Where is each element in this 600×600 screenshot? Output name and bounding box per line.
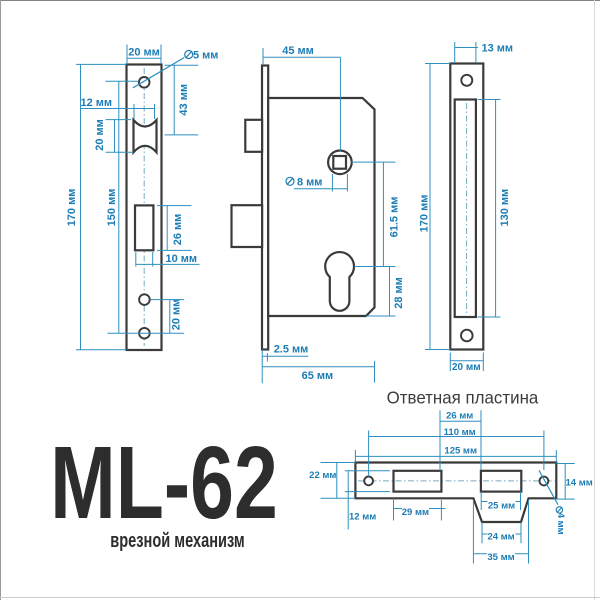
svg-text:ML-62: ML-62 <box>50 426 278 541</box>
svg-text:врезной механизм: врезной механизм <box>110 529 244 552</box>
svg-text:24 мм: 24 мм <box>487 532 514 543</box>
svg-text:26 мм: 26 мм <box>172 214 184 246</box>
svg-text:4 мм: 4 мм <box>555 513 566 535</box>
svg-text:20 мм: 20 мм <box>171 299 183 331</box>
svg-text:10 мм: 10 мм <box>166 253 198 265</box>
svg-text:12 мм: 12 мм <box>349 512 376 523</box>
svg-text:Ответная пластина: Ответная пластина <box>387 387 539 408</box>
svg-text:5 мм: 5 мм <box>193 49 218 61</box>
svg-text:2.5 мм: 2.5 мм <box>274 344 309 356</box>
svg-text:13 мм: 13 мм <box>482 43 514 55</box>
svg-text:170 мм: 170 мм <box>419 195 431 233</box>
svg-text:28 мм: 28 мм <box>393 277 405 309</box>
svg-text:130 мм: 130 мм <box>499 189 511 227</box>
svg-text:26 мм: 26 мм <box>446 411 473 422</box>
svg-text:43 мм: 43 мм <box>178 84 190 116</box>
svg-text:20 мм: 20 мм <box>128 46 160 58</box>
svg-text:20 мм: 20 мм <box>94 119 106 151</box>
svg-text:14 мм: 14 мм <box>566 478 593 489</box>
svg-text:61.5 мм: 61.5 мм <box>389 197 401 238</box>
svg-text:65 мм: 65 мм <box>302 370 334 382</box>
svg-text:20 мм: 20 мм <box>452 362 481 373</box>
svg-text:150 мм: 150 мм <box>106 189 118 227</box>
svg-text:125 мм: 125 мм <box>444 446 477 457</box>
svg-text:12 мм: 12 мм <box>81 97 113 109</box>
svg-text:25 мм: 25 мм <box>488 501 515 512</box>
svg-text:22 мм: 22 мм <box>309 470 336 481</box>
svg-text:110 мм: 110 мм <box>444 427 476 438</box>
svg-text:35 мм: 35 мм <box>487 552 514 563</box>
svg-text:45 мм: 45 мм <box>282 45 314 57</box>
svg-text:29 мм: 29 мм <box>402 507 429 518</box>
svg-text:170 мм: 170 мм <box>66 189 78 227</box>
svg-text:8 мм: 8 мм <box>297 176 322 188</box>
